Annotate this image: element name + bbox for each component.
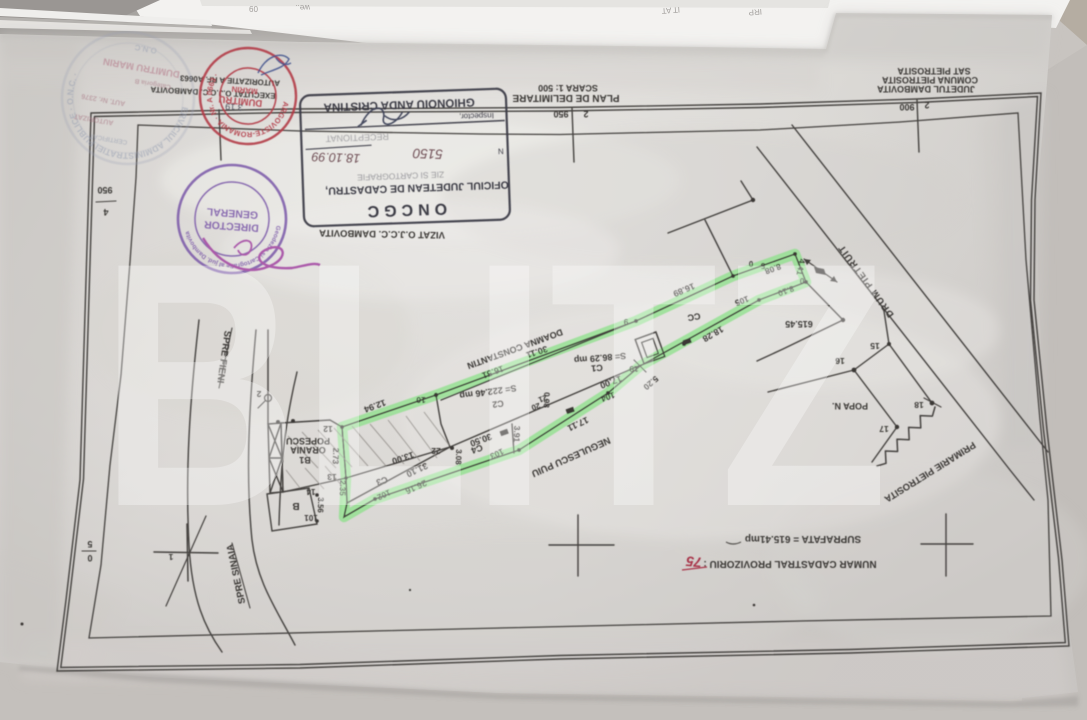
svg-text:SAT PIETROSITA: SAT PIETROSITA — [897, 66, 971, 76]
svg-text:SCARA 1: 500: SCARA 1: 500 — [538, 83, 598, 93]
svg-text:2: 2 — [583, 109, 588, 119]
svg-text:0: 0 — [87, 553, 92, 563]
svg-text:5: 5 — [87, 539, 92, 549]
svg-text:BLITZ: BLITZ — [100, 190, 890, 579]
svg-text:we..: we.. — [295, 3, 311, 12]
svg-text:IT AT: IT AT — [661, 5, 680, 15]
svg-text:JUDETUL DAMBOVITA: JUDETUL DAMBOVITA — [877, 84, 975, 94]
svg-text:18.10.99: 18.10.99 — [311, 150, 360, 166]
svg-text:COMUNA PIETROSITA: COMUNA PIETROSITA — [882, 75, 978, 85]
svg-text:Inspector,: Inspector, — [459, 111, 494, 121]
svg-text:5150: 5150 — [412, 146, 443, 162]
svg-text:09: 09 — [249, 4, 258, 13]
svg-text:900: 900 — [899, 102, 914, 112]
svg-text:N: N — [498, 147, 504, 156]
svg-text:PLAN DE DELIMITARE: PLAN DE DELIMITARE — [512, 92, 619, 103]
svg-text:950: 950 — [553, 109, 568, 119]
svg-text:2: 2 — [924, 100, 929, 110]
svg-text:3 19: 3 19 — [225, 101, 243, 112]
svg-text:IRP: IRP — [748, 7, 762, 17]
svg-text:18: 18 — [914, 400, 924, 410]
